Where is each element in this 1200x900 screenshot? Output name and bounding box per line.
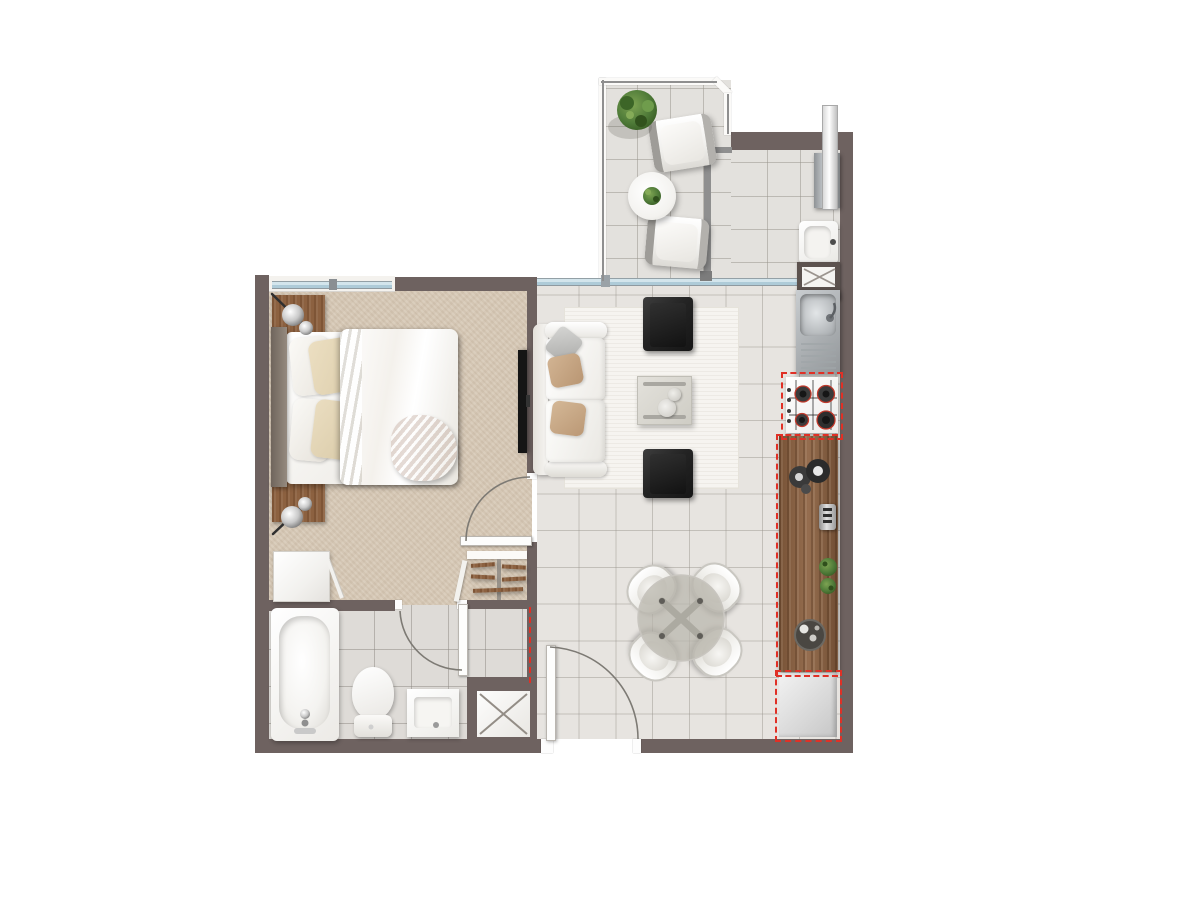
optional-opening-marker <box>529 607 531 683</box>
toaster-slot-3 <box>823 520 832 523</box>
toilet-seat <box>352 667 394 719</box>
kitchen-sink-bowl <box>800 294 836 336</box>
armchair-black-top <box>643 297 693 351</box>
wall-bedroom-top <box>393 277 537 291</box>
tray-large <box>658 399 676 417</box>
coffee-table-rail-top <box>643 382 686 386</box>
toaster-slot-1 <box>823 508 832 511</box>
cooktop <box>786 377 838 433</box>
dresser <box>273 551 330 602</box>
bed-blanket <box>391 415 457 481</box>
sofa-pillow-tan-1 <box>546 352 584 389</box>
laundry-sink-bowl <box>804 226 831 259</box>
divider-rail-cap-bottom <box>700 271 712 281</box>
appliance-space-crosshatch <box>802 267 835 287</box>
balcony-rail-left-core <box>602 80 604 281</box>
sofa <box>533 322 607 477</box>
bed <box>271 327 461 487</box>
fridge-space <box>779 673 837 737</box>
hanger-bar-3 <box>471 574 495 579</box>
kitchen-counter <box>779 436 838 672</box>
armchair-black-bottom <box>643 449 693 498</box>
bath-door-jamb-left <box>395 600 402 609</box>
bed-headboard <box>271 327 287 487</box>
closet-shelf-top <box>467 551 527 559</box>
wall-closet-bottom <box>467 600 537 609</box>
balcony-table <box>628 172 676 220</box>
toilet-tank <box>354 715 392 737</box>
balcony-chair-top <box>647 112 717 173</box>
kitchen-sink-unit <box>796 290 840 374</box>
balcony-rail-right-core <box>727 94 729 134</box>
toilet <box>352 667 394 737</box>
toaster <box>819 504 836 530</box>
bedroom-door-leaf <box>460 536 532 546</box>
hanger-bar-5 <box>473 587 523 593</box>
balcony-chair-bottom <box>644 214 710 269</box>
living-window-glass <box>537 278 797 286</box>
armchair-seat <box>650 303 686 347</box>
toaster-slot-2 <box>823 514 832 517</box>
entry-door-leaf <box>546 645 556 741</box>
bedroom-window-mullion <box>329 279 337 290</box>
closet <box>458 550 530 600</box>
bathtub-basin <box>279 616 330 729</box>
tray-small <box>668 388 681 401</box>
sofa-armrest-bottom <box>545 461 607 477</box>
wall-left <box>255 275 269 753</box>
tv-mount <box>526 395 530 407</box>
sofa-pillow-tan-2 <box>549 400 587 437</box>
washbasin-bowl <box>414 697 452 728</box>
laundry-sink <box>799 221 838 264</box>
balcony-rail-top-core <box>601 81 717 83</box>
wall-right <box>840 132 853 739</box>
entry-jamb-left <box>541 739 553 753</box>
water-heater-pipe <box>822 105 838 210</box>
hanger-bar-2 <box>502 564 526 569</box>
bed-duvet-fold <box>340 329 362 485</box>
floor-plan-canvas <box>0 0 1200 900</box>
duct-shaft-box <box>477 691 530 737</box>
hanger-bar-1 <box>471 562 495 568</box>
coffee-table <box>637 376 692 425</box>
hanger-bar-4 <box>502 576 526 581</box>
armchair-seat <box>650 454 686 494</box>
entry-jamb-right <box>633 739 641 753</box>
closet-rod-center <box>497 559 501 600</box>
bathtub <box>271 608 339 741</box>
bathroom-door-leaf <box>458 604 468 676</box>
wall-bottom-right <box>641 739 853 753</box>
washbasin <box>407 689 459 737</box>
